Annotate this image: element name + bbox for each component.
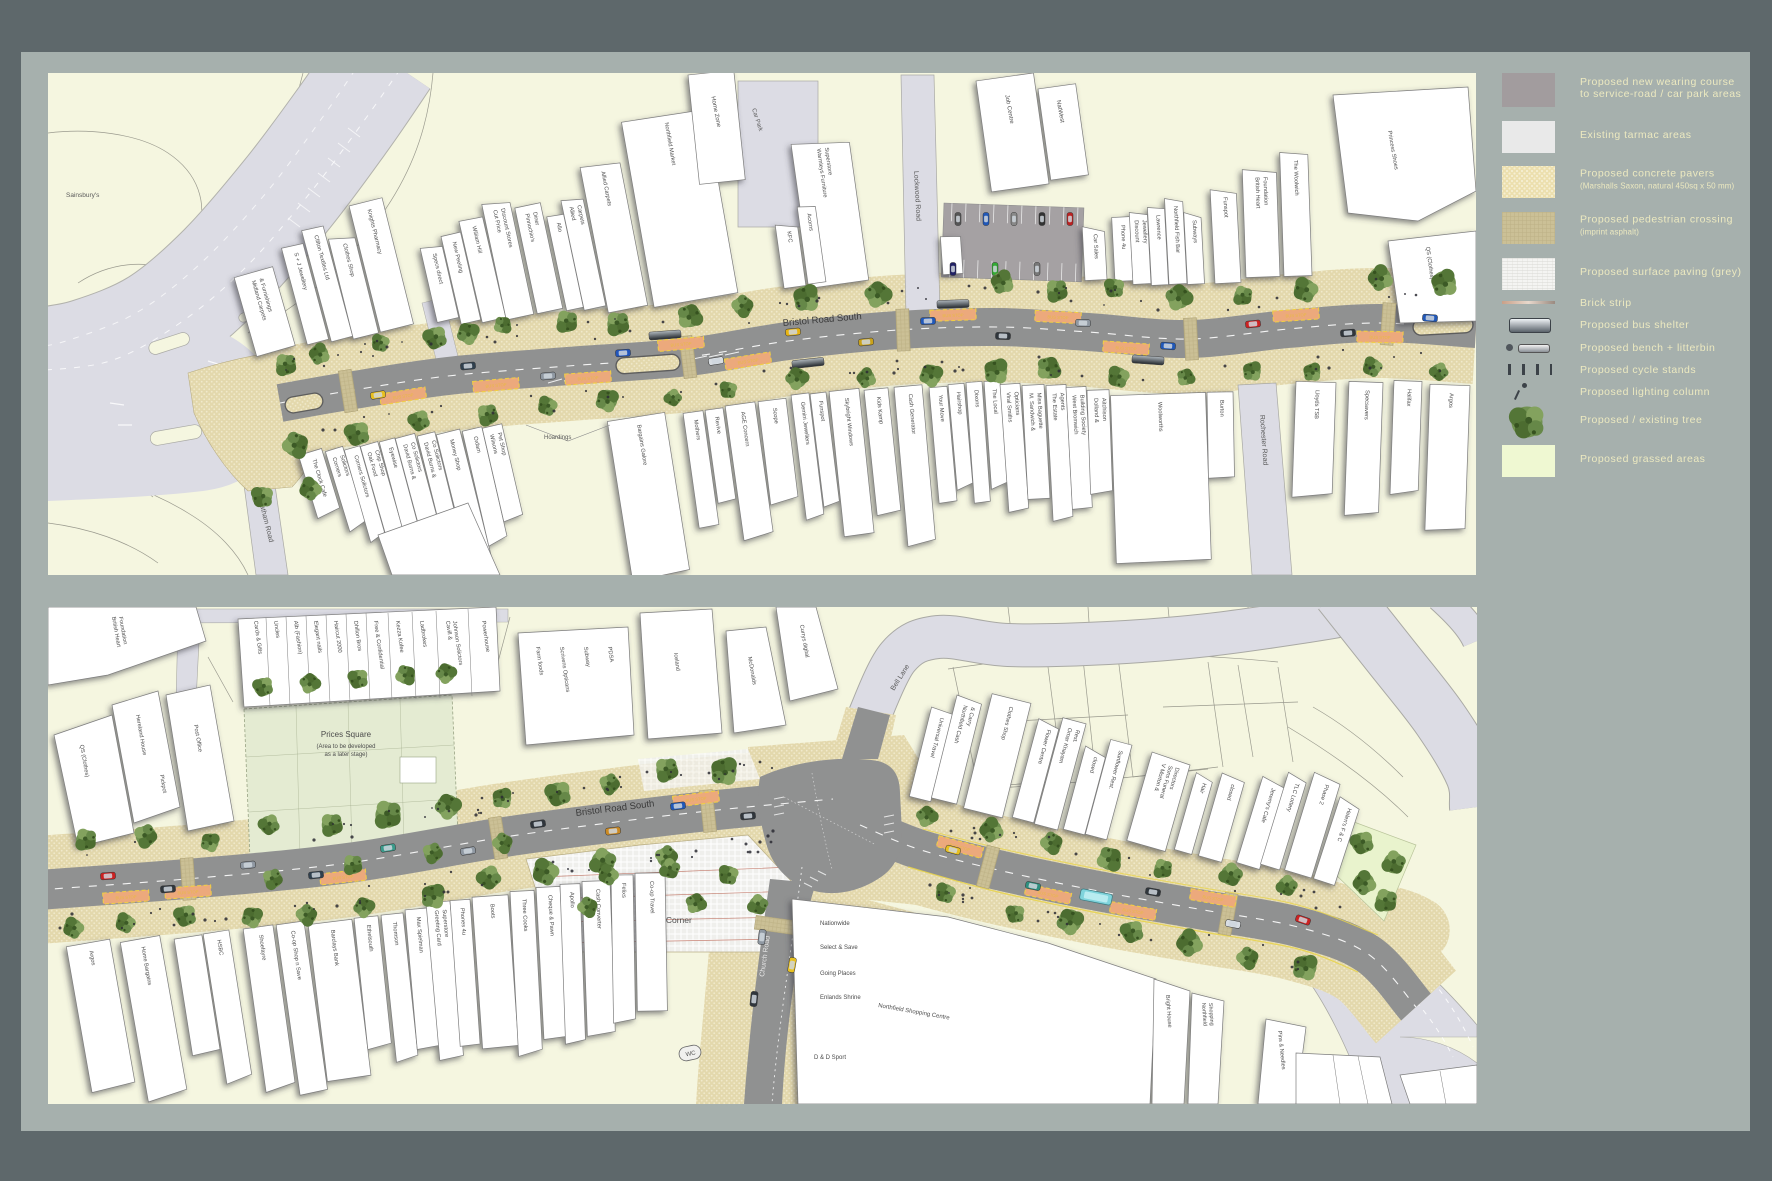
svg-text:Discount: Discount [1133,220,1140,243]
svg-text:Sainsbury's: Sainsbury's [66,192,100,199]
svg-text:Aitchison: Aitchison [1100,398,1107,421]
svg-text:Lloyds TSB: Lloyds TSB [1313,390,1320,419]
svg-text:The Woolwich: The Woolwich [1292,160,1299,196]
svg-text:Hoardings: Hoardings [544,435,571,441]
svg-text:BUS STOP: BUS STOP [1369,335,1390,340]
svg-text:as a later stage): as a later stage) [324,752,367,758]
svg-text:Phone 4u: Phone 4u [1119,225,1126,250]
svg-text:Felixs: Felixs [620,883,626,898]
svg-text:Dolland &: Dolland & [1092,398,1099,423]
svg-text:Enlands Shrine: Enlands Shrine [820,995,861,1001]
svg-text:Woolworths: Woolworths [1156,402,1163,432]
svg-text:Nationwide: Nationwide [820,921,850,927]
svg-text:Boots: Boots [489,904,496,919]
svg-text:Foundation: Foundation [1262,177,1269,206]
svg-text:D & D Sport: D & D Sport [814,1055,846,1061]
svg-text:Burton: Burton [1218,400,1224,417]
svg-text:Halifax: Halifax [1405,389,1412,407]
svg-text:BUS STOP: BUS STOP [942,312,963,318]
svg-text:Prices Square: Prices Square [321,730,372,739]
svg-text:Dixons: Dixons [973,390,980,408]
svg-text:British Heart: British Heart [1254,177,1261,209]
svg-text:Agents: Agents [1058,393,1065,411]
svg-text:Jewellery: Jewellery [1141,220,1148,244]
svg-text:Going Places: Going Places [820,971,856,977]
svg-text:Select & Save: Select & Save [820,945,858,951]
svg-text:Co-op Travel: Co-op Travel [648,881,655,914]
svg-text:Apollo: Apollo [568,892,575,908]
svg-text:Funspot: Funspot [1222,197,1229,218]
svg-text:(Area to be developed: (Area to be developed [316,744,375,750]
svg-text:Argos: Argos [1447,393,1454,408]
svg-text:Subways: Subways [1191,220,1198,244]
svg-text:Specsavers: Specsavers [1363,390,1370,420]
